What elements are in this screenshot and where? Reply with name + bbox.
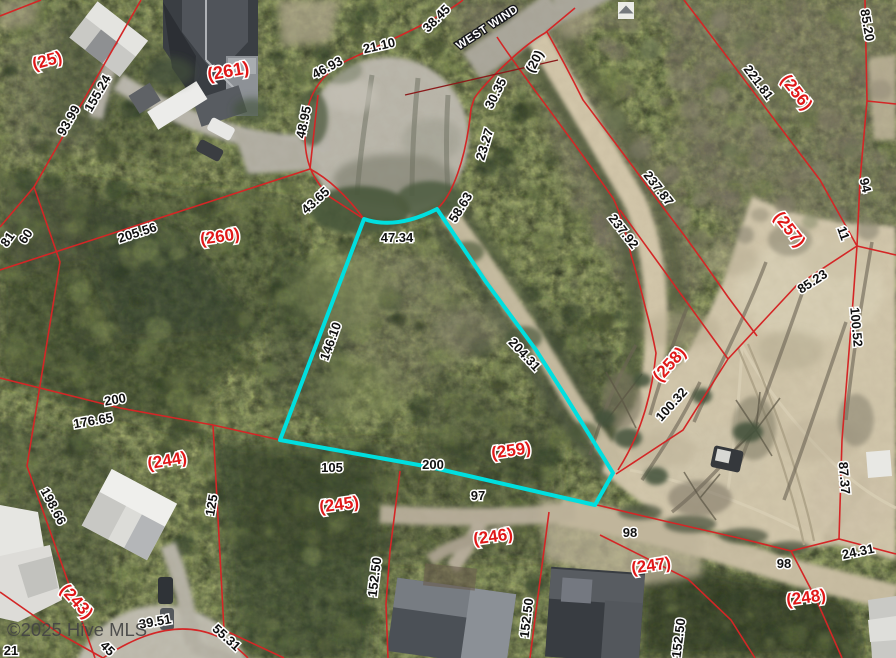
svg-text:97: 97: [471, 488, 485, 503]
svg-text:98: 98: [777, 556, 791, 571]
svg-text:47.34: 47.34: [381, 230, 414, 245]
svg-text:105: 105: [321, 460, 343, 475]
svg-text:200: 200: [422, 457, 444, 472]
svg-text:21: 21: [4, 643, 18, 658]
svg-text:©2025 Hive MLS: ©2025 Hive MLS: [7, 619, 147, 640]
svg-text:87.37: 87.37: [836, 461, 854, 495]
svg-text:98: 98: [623, 525, 637, 540]
